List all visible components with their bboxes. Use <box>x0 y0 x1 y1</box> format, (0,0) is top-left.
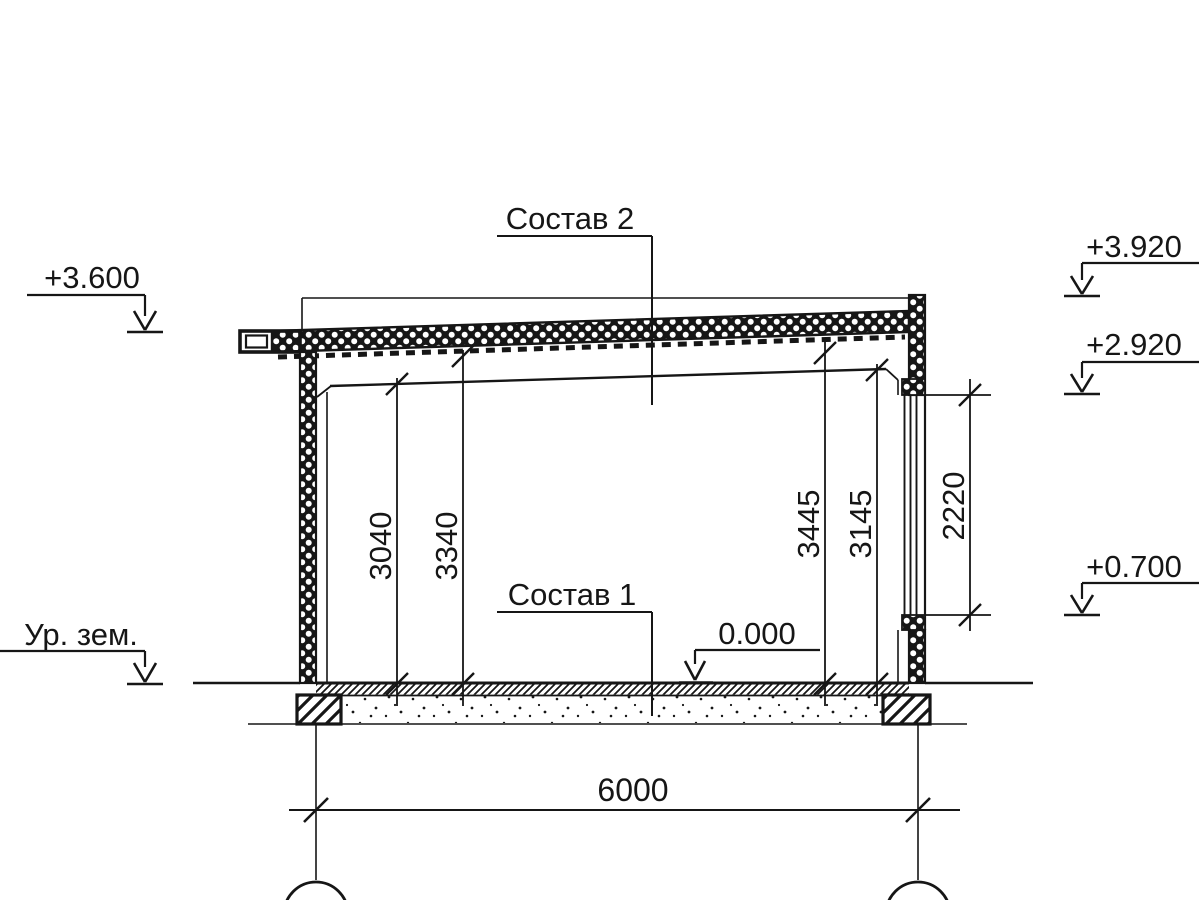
right-wall-below-sill <box>909 630 925 683</box>
elevation-marker-parapet: +3.920 <box>1064 229 1199 296</box>
dim-floor-to-ceiling-right: 3145 <box>843 359 888 706</box>
dim-text-3445: 3445 <box>791 490 826 559</box>
foundation-right <box>883 695 930 724</box>
eaves-gutter-slot <box>246 336 267 348</box>
window-glazing <box>905 395 917 615</box>
dim-text-6000: 6000 <box>597 772 668 808</box>
dim-floor-to-roof-left: 3340 <box>429 345 474 706</box>
substrate-stipple <box>341 696 883 723</box>
left-ceiling-chamfer <box>317 386 331 397</box>
window-sill <box>902 615 925 630</box>
window <box>902 379 925 630</box>
elevation-text-0700: +0.700 <box>1086 549 1182 584</box>
label-sostav-1: Состав 1 <box>508 577 637 612</box>
elevation-marker-window-head: +2.920 <box>1064 327 1199 394</box>
section-drawing: 3040 3340 3445 3145 2220 Состав 2 Состав… <box>0 0 1200 900</box>
elevation-text-3920: +3.920 <box>1086 229 1182 264</box>
dim-text-3145: 3145 <box>843 490 878 559</box>
right-ceiling-chamfer <box>886 369 898 380</box>
label-sostav-2: Состав 2 <box>506 201 635 236</box>
elevation-marker-roof-left: +3.600 <box>27 260 163 332</box>
dim-span: 6000 <box>289 724 960 880</box>
dim-text-2220: 2220 <box>936 472 971 541</box>
left-wall <box>300 352 331 683</box>
dim-text-3340: 3340 <box>429 512 464 581</box>
roof-slab <box>240 311 909 357</box>
ground-level-text: Ур. зем. <box>24 617 138 652</box>
leader-roof-composition: Состав 2 <box>497 201 652 405</box>
elevation-text-0000: 0.000 <box>718 616 796 651</box>
axis-bubble-left <box>284 882 348 900</box>
elevation-text-3600: +3.600 <box>44 260 140 295</box>
axis-bubbles <box>284 882 950 900</box>
elevation-marker-window-sill: +0.700 <box>1064 549 1199 615</box>
axis-bubble-right <box>886 882 950 900</box>
dim-window-height: 2220 <box>925 379 991 631</box>
dim-floor-to-ceiling-left: 3040 <box>363 373 408 706</box>
window-lintel <box>902 379 925 395</box>
foundation-left <box>297 695 341 724</box>
dim-text-3040: 3040 <box>363 512 398 581</box>
ceiling-line <box>330 369 898 386</box>
elevation-text-2920: +2.920 <box>1086 327 1182 362</box>
substrate-layer <box>248 696 967 724</box>
elevation-marker-floor-zero: 0.000 <box>679 616 820 683</box>
elevation-marker-ground-level: Ур. зем. <box>0 617 163 684</box>
